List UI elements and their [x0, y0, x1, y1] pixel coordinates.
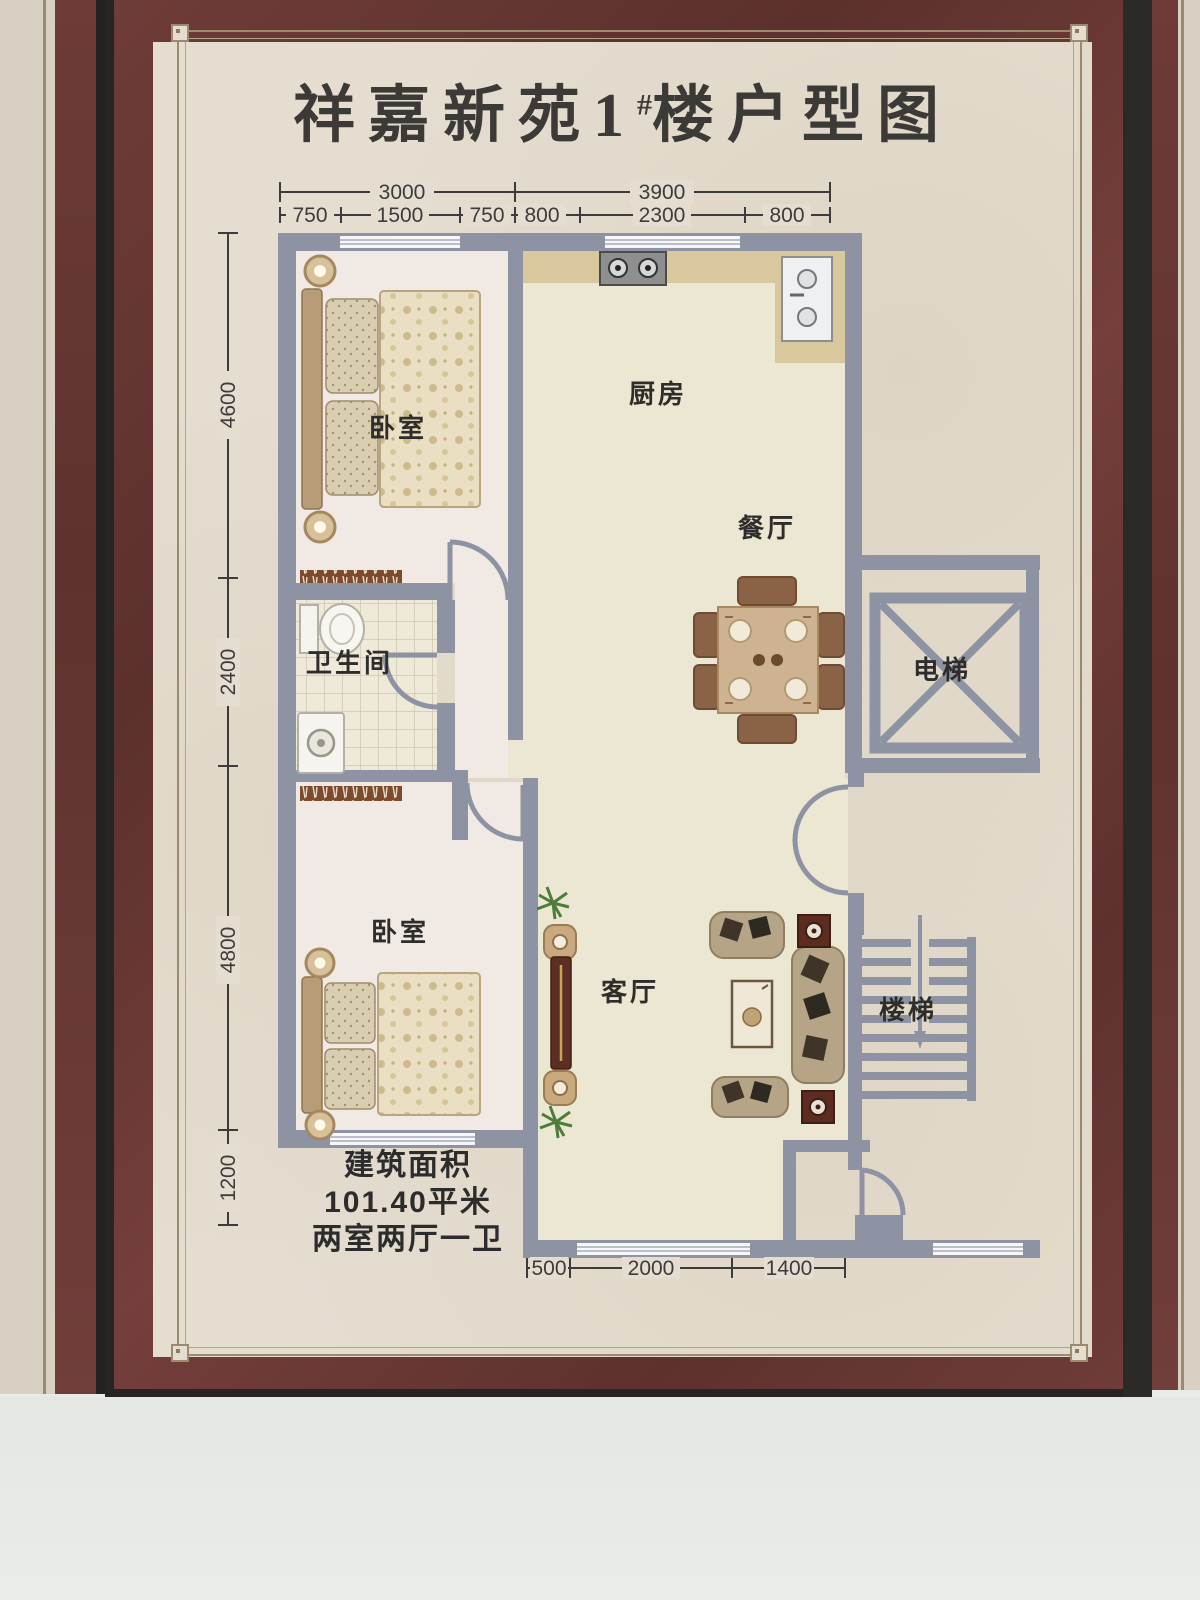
- dim-top-3000: 3000: [379, 181, 426, 204]
- window: [577, 1243, 750, 1255]
- left-poster-frame: [55, 0, 96, 1394]
- dimension-left: 4600 2400 4800 1200: [216, 233, 240, 1225]
- dim-bottom-2000: 2000: [628, 1257, 675, 1280]
- window: [340, 236, 460, 248]
- dim-top-750a: 750: [292, 204, 327, 227]
- photo-of-framed-floorplan: 祥嘉新苑1#楼户型图: [0, 0, 1200, 1600]
- label-kitchen: 厨房: [629, 379, 687, 409]
- dim-top-3900: 3900: [639, 181, 686, 204]
- dimension-bottom: 500 2000 1400: [527, 1257, 845, 1280]
- area-line2: 101.40平米: [324, 1186, 492, 1219]
- label-bedroom-top: 卧室: [369, 413, 427, 443]
- title-hash: #: [637, 88, 652, 121]
- window: [933, 1243, 1023, 1255]
- adjacent-poster-right: [1152, 0, 1200, 1390]
- floor-plan: 卧室 厨房 餐厅 卫生间 电梯 卧室 客厅 楼梯 建筑面积 101.40平米 两…: [180, 170, 1060, 1300]
- right-poster-frame: [1152, 0, 1178, 1390]
- label-stairs: 楼梯: [879, 995, 937, 1025]
- label-bathroom: 卫生间: [306, 648, 393, 678]
- stove: [600, 252, 666, 285]
- title-number: 1: [593, 82, 637, 150]
- label-elevator: 电梯: [913, 655, 971, 685]
- label-living: 客厅: [601, 977, 659, 1007]
- shoe-cabinet-top: [300, 570, 402, 583]
- poster-title: 祥嘉新苑1#楼户型图: [153, 64, 1092, 154]
- right-poster-border-line: [1181, 0, 1184, 1390]
- border-corner-ornament: [1070, 24, 1088, 42]
- dim-left-2400: 2400: [217, 649, 240, 696]
- border-corner-ornament: [171, 24, 189, 42]
- shoe-cabinet-bottom: [300, 786, 402, 801]
- area-line3: 两室两厅一卫: [312, 1222, 504, 1256]
- dim-top-1500: 1500: [377, 204, 424, 227]
- washing-machine: [298, 713, 344, 773]
- dim-top-2300: 2300: [639, 204, 686, 227]
- border-corner-ornament: [1070, 1344, 1088, 1362]
- door-stair-lobby: [862, 1170, 903, 1215]
- background-wall: [0, 1397, 1200, 1600]
- label-dining: 餐厅: [738, 513, 796, 543]
- kitchen-sink: [782, 257, 832, 341]
- coffee-table: [732, 981, 772, 1047]
- area-line1: 建筑面积: [344, 1148, 472, 1182]
- dim-left-1200: 1200: [217, 1155, 240, 1202]
- left-poster-border-line: [43, 0, 46, 1394]
- dimension-top: 3000 3900 750 1500 750 800 2300 800: [280, 180, 830, 227]
- dim-bottom-1400: 1400: [766, 1257, 813, 1280]
- window: [330, 1133, 475, 1145]
- dim-top-750b: 750: [469, 204, 504, 227]
- title-prefix: 祥嘉新苑: [293, 82, 593, 150]
- adjacent-poster-left: [0, 0, 108, 1394]
- dim-top-800a: 800: [524, 204, 559, 227]
- window: [605, 236, 740, 248]
- area-info: 建筑面积 101.40平米 两室两厅一卫: [312, 1148, 504, 1256]
- dim-bottom-500: 500: [531, 1257, 566, 1280]
- frame-gap-shadow: [1123, 0, 1152, 1397]
- border-corner-ornament: [171, 1344, 189, 1362]
- dim-top-800b: 800: [769, 204, 804, 227]
- dim-left-4600: 4600: [217, 382, 240, 429]
- label-bedroom-bottom: 卧室: [371, 917, 429, 947]
- toilet: [300, 604, 364, 654]
- dim-left-4800: 4800: [217, 927, 240, 974]
- title-suffix: 楼户型图: [652, 82, 952, 150]
